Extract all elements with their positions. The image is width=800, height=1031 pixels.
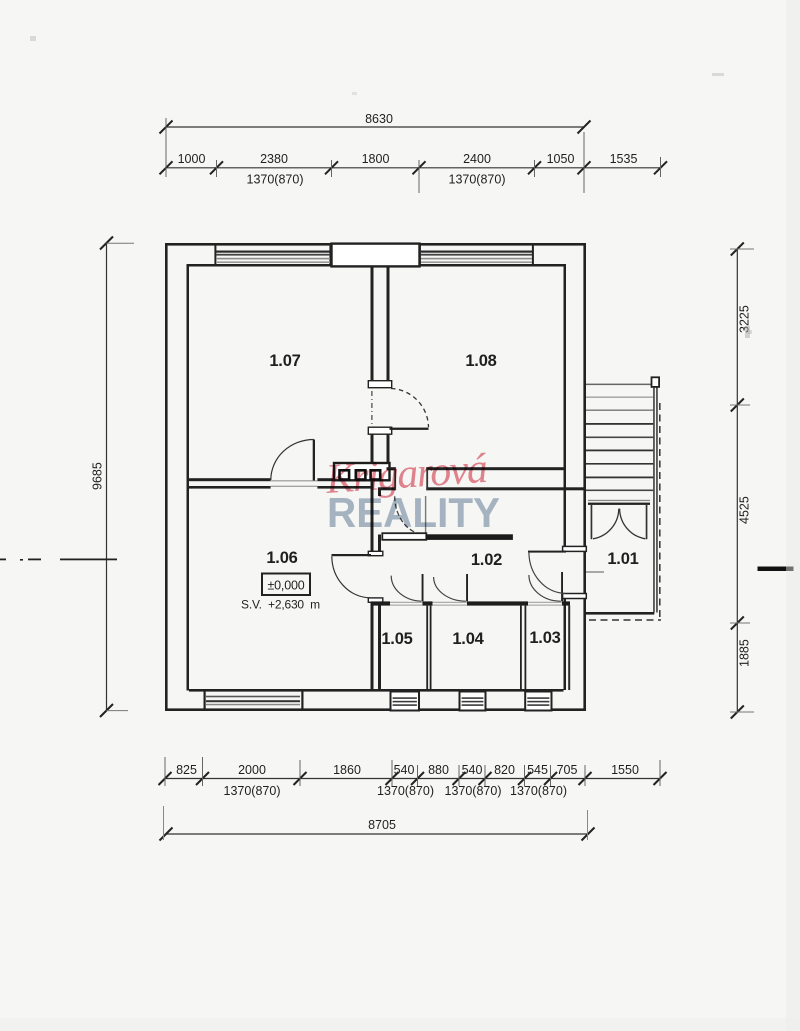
svg-text:8630: 8630 [365,112,393,126]
svg-text:545: 545 [527,763,548,777]
svg-text:1370(870): 1370(870) [247,173,304,187]
svg-text:1800: 1800 [362,152,390,166]
svg-text:540: 540 [462,763,483,777]
svg-text:±0,000: ±0,000 [268,579,305,593]
svg-text:540: 540 [394,763,415,777]
svg-text:1000: 1000 [178,152,206,166]
svg-text:1370(870): 1370(870) [445,784,502,798]
svg-text:880: 880 [428,763,449,777]
svg-text:1370(870): 1370(870) [510,784,567,798]
svg-text:1860: 1860 [333,763,361,777]
svg-text:705: 705 [557,763,578,777]
svg-text:1050: 1050 [547,152,575,166]
svg-text:1885: 1885 [738,639,752,667]
svg-text:2380: 2380 [260,152,288,166]
svg-text:1.04: 1.04 [452,630,484,648]
svg-text:1.06: 1.06 [266,549,297,567]
svg-text:1370(870): 1370(870) [224,784,281,798]
svg-text:2000: 2000 [238,763,266,777]
svg-text:1.01: 1.01 [607,550,638,568]
svg-text:820: 820 [494,763,515,777]
svg-text:1.08: 1.08 [465,352,496,370]
svg-text:1550: 1550 [611,763,639,777]
svg-text:1535: 1535 [610,152,638,166]
svg-text:1.03: 1.03 [529,629,560,647]
svg-text:REALITY: REALITY [327,489,500,536]
svg-text:9685: 9685 [91,462,105,490]
svg-text:8705: 8705 [368,818,396,832]
svg-text:2400: 2400 [463,152,491,166]
svg-text:1370(870): 1370(870) [377,784,434,798]
svg-text:4525: 4525 [738,496,752,524]
svg-text:1.05: 1.05 [381,630,412,648]
svg-text:825: 825 [176,763,197,777]
svg-text:1370(870): 1370(870) [449,173,506,187]
svg-text:S.V. +2,630 m: S.V. +2,630 m [241,598,320,612]
svg-text:1.02: 1.02 [471,551,502,569]
svg-text:1.07: 1.07 [269,352,300,370]
